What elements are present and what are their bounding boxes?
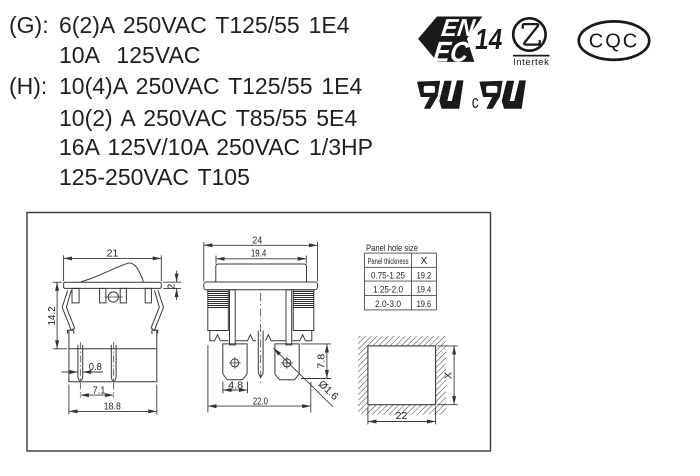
svg-text:2.0-3.0: 2.0-3.0: [375, 299, 401, 310]
svg-text:EC: EC: [432, 36, 471, 68]
svg-text:14: 14: [473, 24, 505, 56]
svg-text:18.8: 18.8: [104, 400, 121, 412]
svg-text:24: 24: [252, 236, 262, 247]
svg-text:7.1: 7.1: [93, 384, 106, 396]
svg-text:0.75-1.25: 0.75-1.25: [371, 270, 405, 281]
svg-text:X: X: [443, 372, 455, 379]
svg-text:19.6: 19.6: [417, 299, 432, 310]
svg-text:Panel thickness: Panel thickness: [368, 257, 409, 266]
svg-text:22: 22: [396, 410, 408, 422]
svg-text:19.2: 19.2: [417, 270, 432, 281]
svg-text:14.2: 14.2: [46, 306, 58, 325]
svg-text:19.4: 19.4: [417, 285, 432, 296]
svg-text:Intertek: Intertek: [513, 57, 549, 68]
svg-text:4.8: 4.8: [228, 379, 243, 391]
svg-text:19.4: 19.4: [251, 248, 267, 260]
svg-text:0.8: 0.8: [89, 362, 102, 373]
svg-text:1.25-2.0: 1.25-2.0: [373, 285, 403, 296]
svg-text:22.0: 22.0: [253, 396, 268, 408]
svg-text:X: X: [421, 256, 428, 267]
svg-text:Panel hole size: Panel hole size: [366, 243, 418, 254]
svg-text:c: c: [472, 92, 479, 112]
svg-text:21: 21: [107, 248, 119, 260]
svg-text:2: 2: [165, 284, 177, 290]
svg-text:CQC: CQC: [589, 31, 639, 53]
svg-text:Ø1.6: Ø1.6: [316, 378, 341, 403]
svg-text:7.8: 7.8: [315, 354, 327, 369]
